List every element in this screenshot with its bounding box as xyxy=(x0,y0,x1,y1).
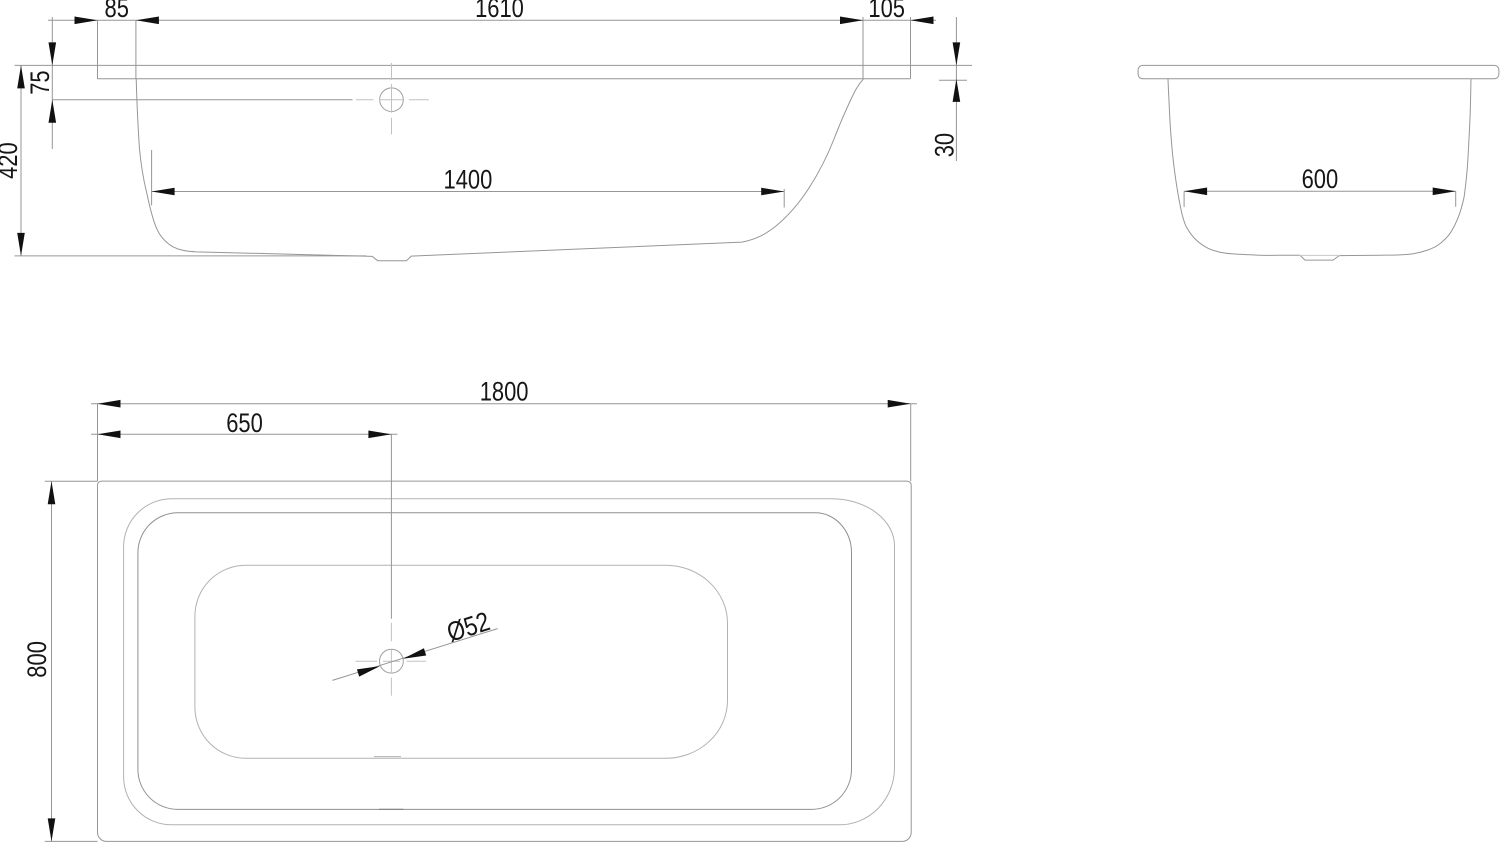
svg-text:85: 85 xyxy=(105,0,129,23)
svg-text:800: 800 xyxy=(22,641,52,678)
svg-text:650: 650 xyxy=(226,408,263,438)
svg-text:Ø52: Ø52 xyxy=(443,606,493,647)
svg-text:600: 600 xyxy=(1302,164,1339,194)
svg-text:1400: 1400 xyxy=(444,164,493,194)
svg-text:1800: 1800 xyxy=(480,377,529,407)
svg-text:1610: 1610 xyxy=(475,0,524,23)
svg-text:420: 420 xyxy=(0,142,23,179)
svg-text:75: 75 xyxy=(25,70,55,94)
svg-text:105: 105 xyxy=(868,0,905,23)
svg-text:30: 30 xyxy=(929,133,959,157)
